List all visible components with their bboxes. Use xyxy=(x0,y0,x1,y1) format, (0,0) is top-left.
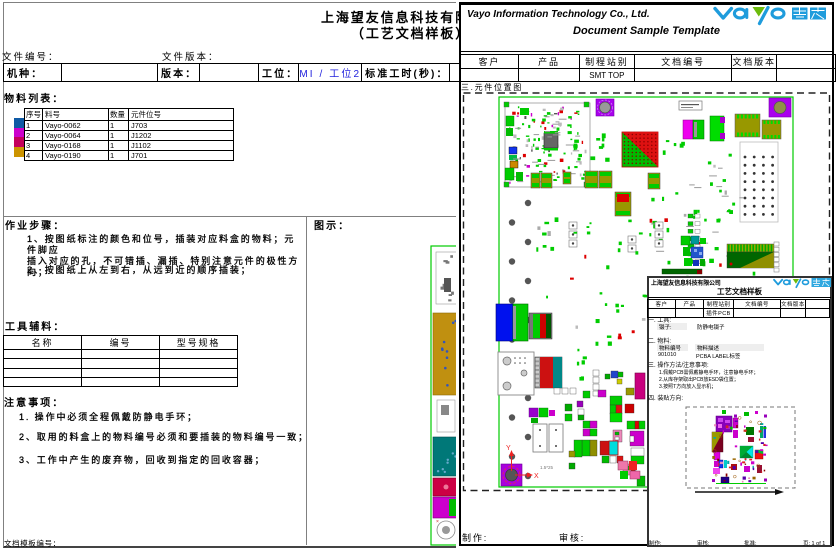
svg-text:×: × xyxy=(436,519,439,525)
svg-text:1.5*25: 1.5*25 xyxy=(540,465,554,470)
svg-text:X: X xyxy=(534,473,539,480)
svg-text:Y: Y xyxy=(506,445,511,452)
